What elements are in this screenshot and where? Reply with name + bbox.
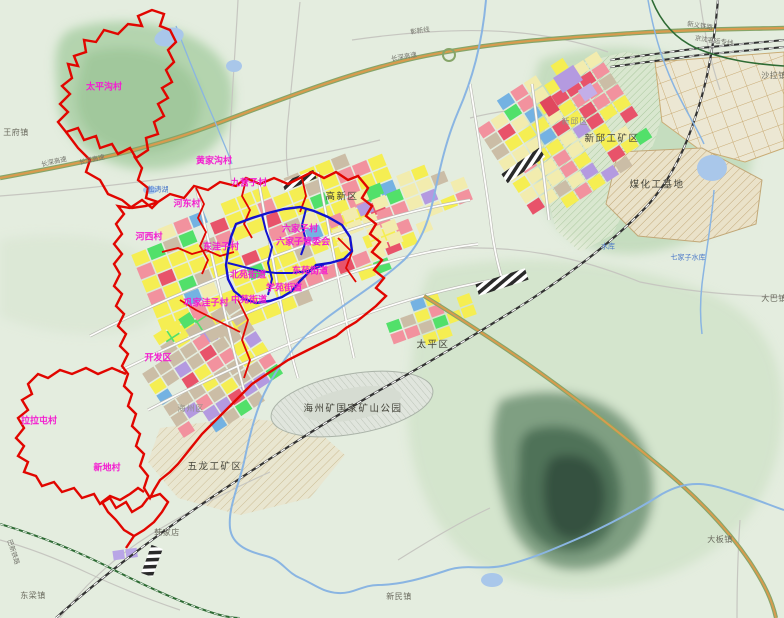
map-canvas[interactable]: 太平沟村黄家沟村九营子村河东村河西村东洼子村六家子村六家子管委会北苑街道东苑街道… bbox=[0, 0, 784, 618]
map-image bbox=[0, 0, 784, 618]
